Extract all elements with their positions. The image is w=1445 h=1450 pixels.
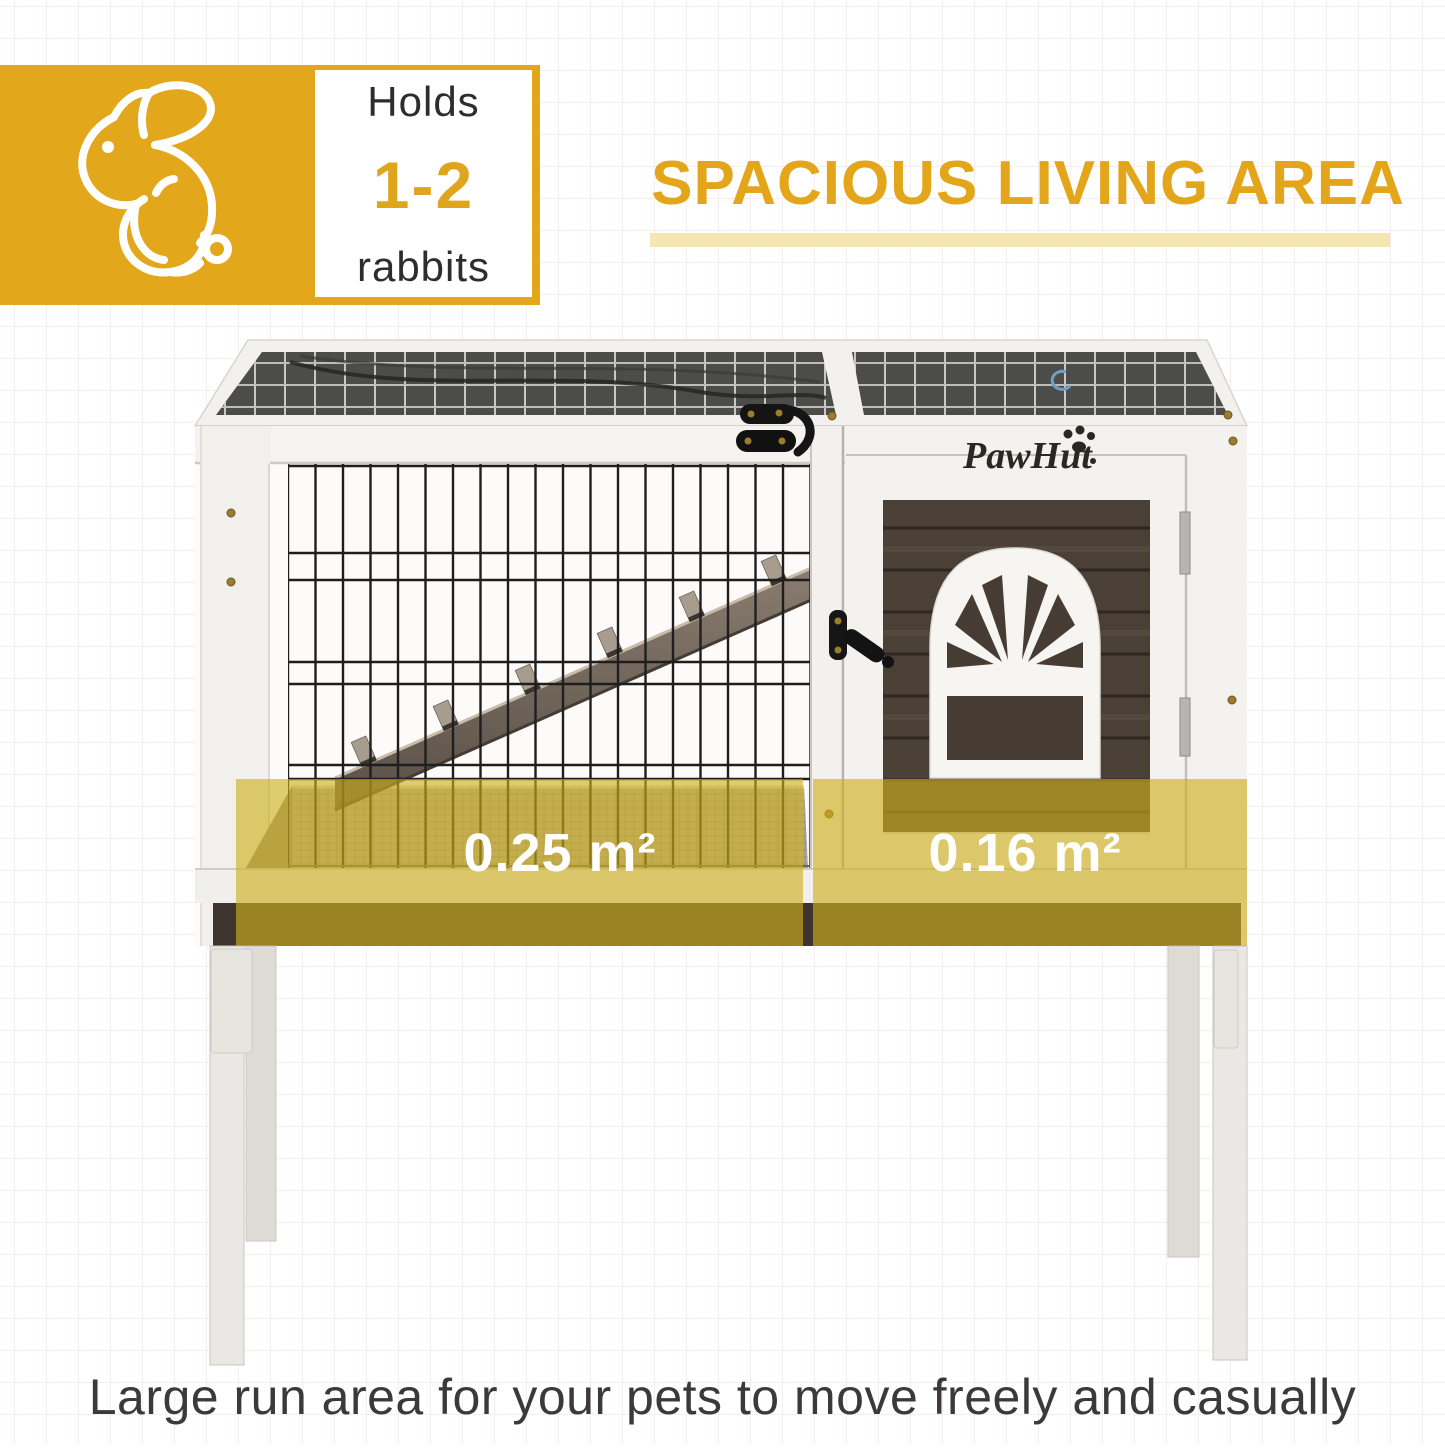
brand-logo-text: PawHut: [962, 435, 1093, 477]
hutch-area-label: 0.16 m²: [928, 822, 1121, 884]
page-background: Holds 1-2 rabbits SPACIOUS LIVING AREA: [0, 0, 1445, 1445]
hutch-legs: [210, 946, 1247, 1365]
run-area-label: 0.25 m²: [463, 822, 656, 884]
caption-text: Large run area for your pets to move fre…: [0, 1368, 1445, 1426]
hutch-photo: PawHut: [0, 0, 1445, 1445]
product-photo: PawHut: [0, 0, 1445, 1445]
arched-window: [930, 548, 1100, 778]
hutch-roof: [195, 340, 1250, 426]
